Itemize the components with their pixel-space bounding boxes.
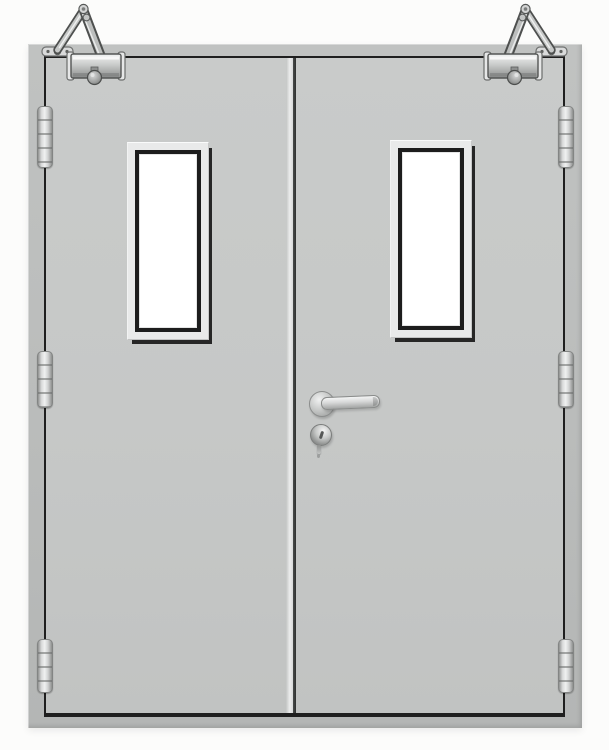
left-vision-panel: [127, 142, 209, 340]
closer-body: [484, 52, 542, 85]
hinge-left-top: [37, 106, 53, 168]
door-closer-left: [38, 1, 150, 96]
door-closer-left-drawing: [38, 1, 150, 96]
door-closer-right-drawing: [459, 1, 571, 96]
lock-cylinder: [310, 424, 332, 446]
right-vision-panel: [390, 140, 472, 338]
door-closer-right: [459, 1, 571, 96]
hanging-key: [317, 445, 321, 454]
lever-handle: [321, 395, 381, 411]
hinge-left-middle: [37, 351, 53, 408]
meeting-stile-highlight: [286, 58, 293, 713]
hinge-left-bottom: [37, 639, 53, 693]
fire-door-product-image: [0, 0, 609, 750]
hinge-right-middle: [558, 351, 574, 408]
hinge-right-top: [558, 106, 574, 168]
hinge-right-bottom: [558, 639, 574, 693]
closer-body: [67, 52, 125, 85]
meeting-stile-gap: [293, 58, 296, 713]
right-vision-glass: [398, 148, 464, 330]
left-vision-glass: [135, 150, 201, 332]
keyhole-icon: [319, 431, 324, 440]
